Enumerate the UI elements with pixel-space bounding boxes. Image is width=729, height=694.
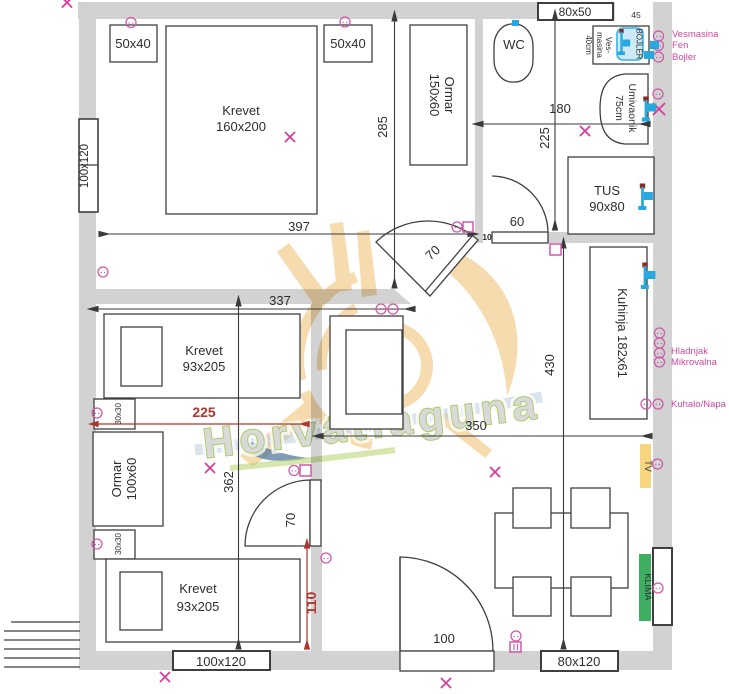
svg-text:30x30: 30x30 — [114, 403, 123, 425]
svg-text:93x205: 93x205 — [183, 359, 226, 374]
svg-text:45: 45 — [631, 10, 641, 20]
svg-text:362: 362 — [221, 471, 236, 493]
svg-text:Fen: Fen — [672, 40, 688, 51]
svg-text:WC: WC — [503, 37, 525, 52]
svg-text:Kuhalo/Napa: Kuhalo/Napa — [671, 399, 727, 410]
svg-text:70: 70 — [283, 513, 298, 527]
svg-text:TV: TV — [643, 460, 653, 472]
svg-text:60: 60 — [510, 214, 524, 229]
svg-text:90x80: 90x80 — [589, 199, 624, 214]
svg-text:40cm: 40cm — [584, 35, 593, 55]
svg-text:10: 10 — [482, 232, 492, 242]
svg-text:KLIMA: KLIMA — [643, 573, 653, 600]
svg-text:93x205: 93x205 — [177, 599, 220, 614]
svg-text:80x50: 80x50 — [559, 5, 592, 19]
svg-text:430: 430 — [542, 354, 557, 376]
svg-text:Bojler: Bojler — [672, 52, 696, 63]
svg-text:110: 110 — [303, 591, 319, 614]
svg-text:Ormar150x60: Ormar150x60 — [427, 74, 457, 117]
svg-text:Vesmasina: Vesmasina — [672, 29, 719, 40]
svg-text:30x30: 30x30 — [114, 533, 123, 555]
svg-text:80x120: 80x120 — [558, 654, 601, 669]
svg-text:100x120: 100x120 — [79, 144, 91, 188]
svg-text:285: 285 — [375, 116, 390, 138]
svg-text:225: 225 — [537, 127, 552, 149]
svg-text:337: 337 — [269, 293, 291, 308]
svg-text:BOJLER: BOJLER — [635, 28, 644, 59]
svg-text:Krevet: Krevet — [222, 103, 260, 118]
svg-text:Krevet: Krevet — [185, 343, 223, 358]
svg-text:Ormar100x60: Ormar100x60 — [109, 458, 139, 501]
svg-text:225: 225 — [192, 404, 216, 420]
svg-text:Mikrovalna: Mikrovalna — [671, 357, 718, 368]
svg-text:350: 350 — [465, 418, 487, 433]
svg-text:TUS: TUS — [594, 183, 620, 198]
svg-text:160x200: 160x200 — [216, 119, 266, 134]
svg-text:50x40: 50x40 — [115, 36, 150, 51]
svg-text:180: 180 — [549, 101, 571, 116]
svg-text:Krevet: Krevet — [179, 581, 217, 596]
svg-text:100x120: 100x120 — [196, 654, 246, 669]
svg-text:Kuhinja 182x61: Kuhinja 182x61 — [615, 288, 630, 378]
svg-text:397: 397 — [288, 219, 310, 234]
svg-text:Hladnjak: Hladnjak — [671, 346, 708, 357]
svg-text:50x40: 50x40 — [330, 36, 365, 51]
svg-text:100: 100 — [433, 631, 455, 646]
